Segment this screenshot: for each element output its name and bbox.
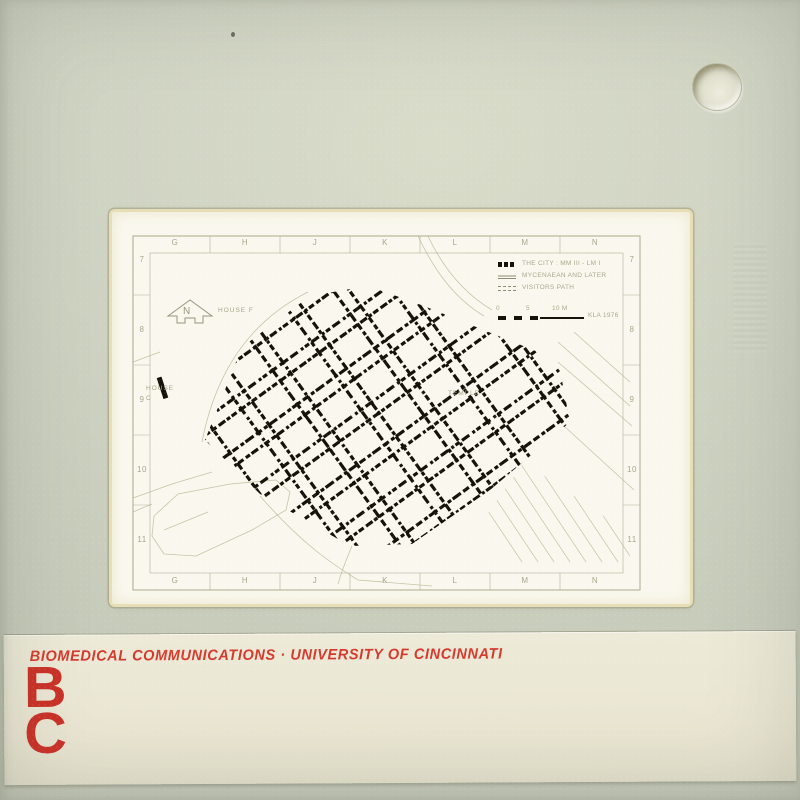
- grid-number-left: 9: [140, 396, 145, 404]
- legend-swatch-path: [498, 286, 516, 291]
- grid-number-left: 10: [137, 466, 147, 474]
- grid-number-left: 7: [140, 256, 145, 264]
- dust-speck: [231, 32, 235, 37]
- film-frame: G H J K L M N G H J K L M N 7 8 9 10 11 …: [112, 212, 690, 604]
- embossed-texture: [733, 243, 767, 353]
- grid-letter-top: K: [382, 239, 388, 247]
- scale-tick: 5: [526, 305, 530, 312]
- grid-letter-bottom: M: [521, 577, 528, 585]
- credit: KLA 1976: [588, 312, 619, 319]
- legend-item: VISITORS PATH: [522, 284, 574, 291]
- grid-number-right: 10: [627, 466, 637, 474]
- thumb-dimple: [692, 63, 742, 111]
- grid-number-left: 11: [137, 536, 146, 544]
- north-label: N: [183, 306, 190, 317]
- grid-letter-top: J: [313, 239, 318, 247]
- grid-number-right: 8: [630, 326, 635, 334]
- grid-letter-top: N: [592, 239, 598, 247]
- grid-letter-bottom: L: [453, 577, 458, 585]
- slide-photo: G H J K L M N G H J K L M N 7 8 9 10 11 …: [0, 0, 800, 800]
- site-plan-svg: [112, 212, 690, 604]
- label-house-f: HOUSE F: [218, 307, 254, 314]
- grid-letter-bottom: J: [313, 577, 318, 585]
- scale-tick: 0: [496, 305, 500, 312]
- grid-number-left: 8: [140, 326, 145, 334]
- grid-letter-top: L: [453, 239, 458, 247]
- grid-number-right: 11: [627, 536, 636, 544]
- caption-label: BIOMEDICAL COMMUNICATIONS · UNIVERSITY O…: [4, 631, 797, 785]
- grid-letter-bottom: N: [592, 577, 598, 585]
- grid-letter-top: M: [521, 239, 528, 247]
- scale-bar: [498, 316, 538, 320]
- slide-aperture: G H J K L M N G H J K L M N 7 8 9 10 11 …: [112, 212, 690, 604]
- label-house-c: HOUSE C: [146, 384, 182, 405]
- scale-tick: 10 M: [552, 305, 568, 312]
- legend-item: MYCENAEAN AND LATER: [522, 272, 606, 279]
- bc-logo: B C: [24, 665, 67, 757]
- legend-item: THE CITY : MM III - LM I: [522, 260, 601, 267]
- label-temple: TEMPLE: [448, 390, 480, 397]
- grid-letter-top: H: [242, 239, 248, 247]
- grid-letter-bottom: K: [382, 577, 388, 585]
- grid-number-right: 9: [630, 396, 635, 404]
- legend-swatch-mycenaean: [498, 274, 516, 279]
- caption-text: BIOMEDICAL COMMUNICATIONS · UNIVERSITY O…: [30, 645, 503, 664]
- legend-swatch-city: [498, 262, 516, 267]
- town-walls: [112, 212, 690, 604]
- grid-letter-top: G: [172, 239, 179, 247]
- slope-hatching: [442, 442, 690, 562]
- bc-logo-c: C: [24, 711, 67, 757]
- grid-letter-bottom: H: [242, 577, 248, 585]
- grid-number-right: 7: [630, 256, 635, 264]
- scale-bar-line: [540, 317, 584, 319]
- grid-letter-bottom: G: [172, 577, 179, 585]
